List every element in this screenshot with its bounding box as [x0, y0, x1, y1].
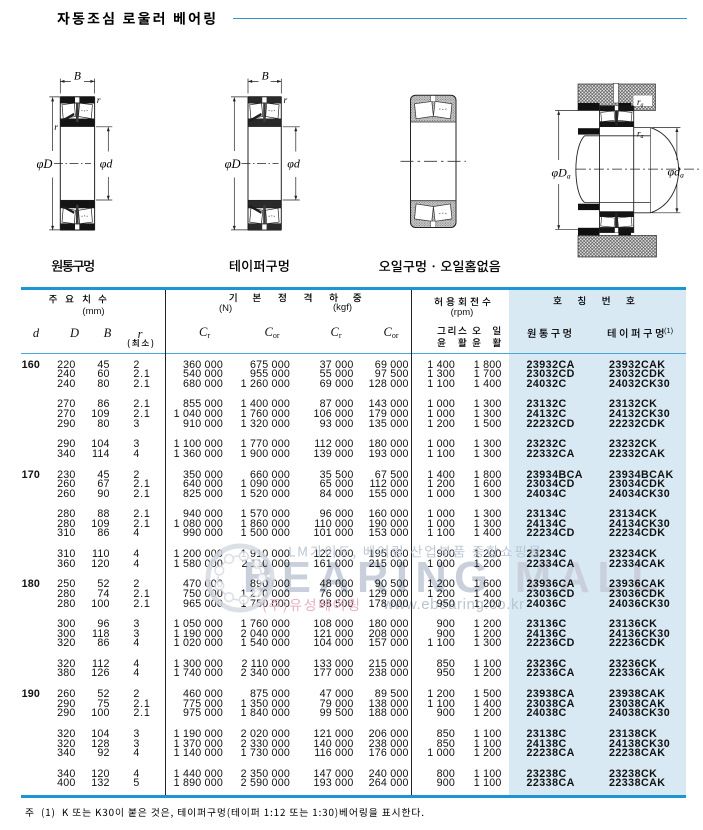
- svg-text:φD: φD: [225, 157, 241, 171]
- svg-text:φd: φd: [287, 156, 301, 170]
- svg-text:r: r: [284, 96, 288, 106]
- svg-text:ra: ra: [637, 129, 644, 141]
- svg-text:B: B: [74, 71, 81, 83]
- svg-text:φda: φda: [668, 165, 685, 180]
- svg-text:r: r: [54, 123, 58, 133]
- svg-text:φd: φd: [100, 156, 114, 170]
- svg-text:φDa: φDa: [552, 166, 571, 181]
- svg-text:φD: φD: [37, 157, 53, 171]
- svg-text:B: B: [262, 71, 269, 83]
- svg-text:r: r: [97, 96, 101, 106]
